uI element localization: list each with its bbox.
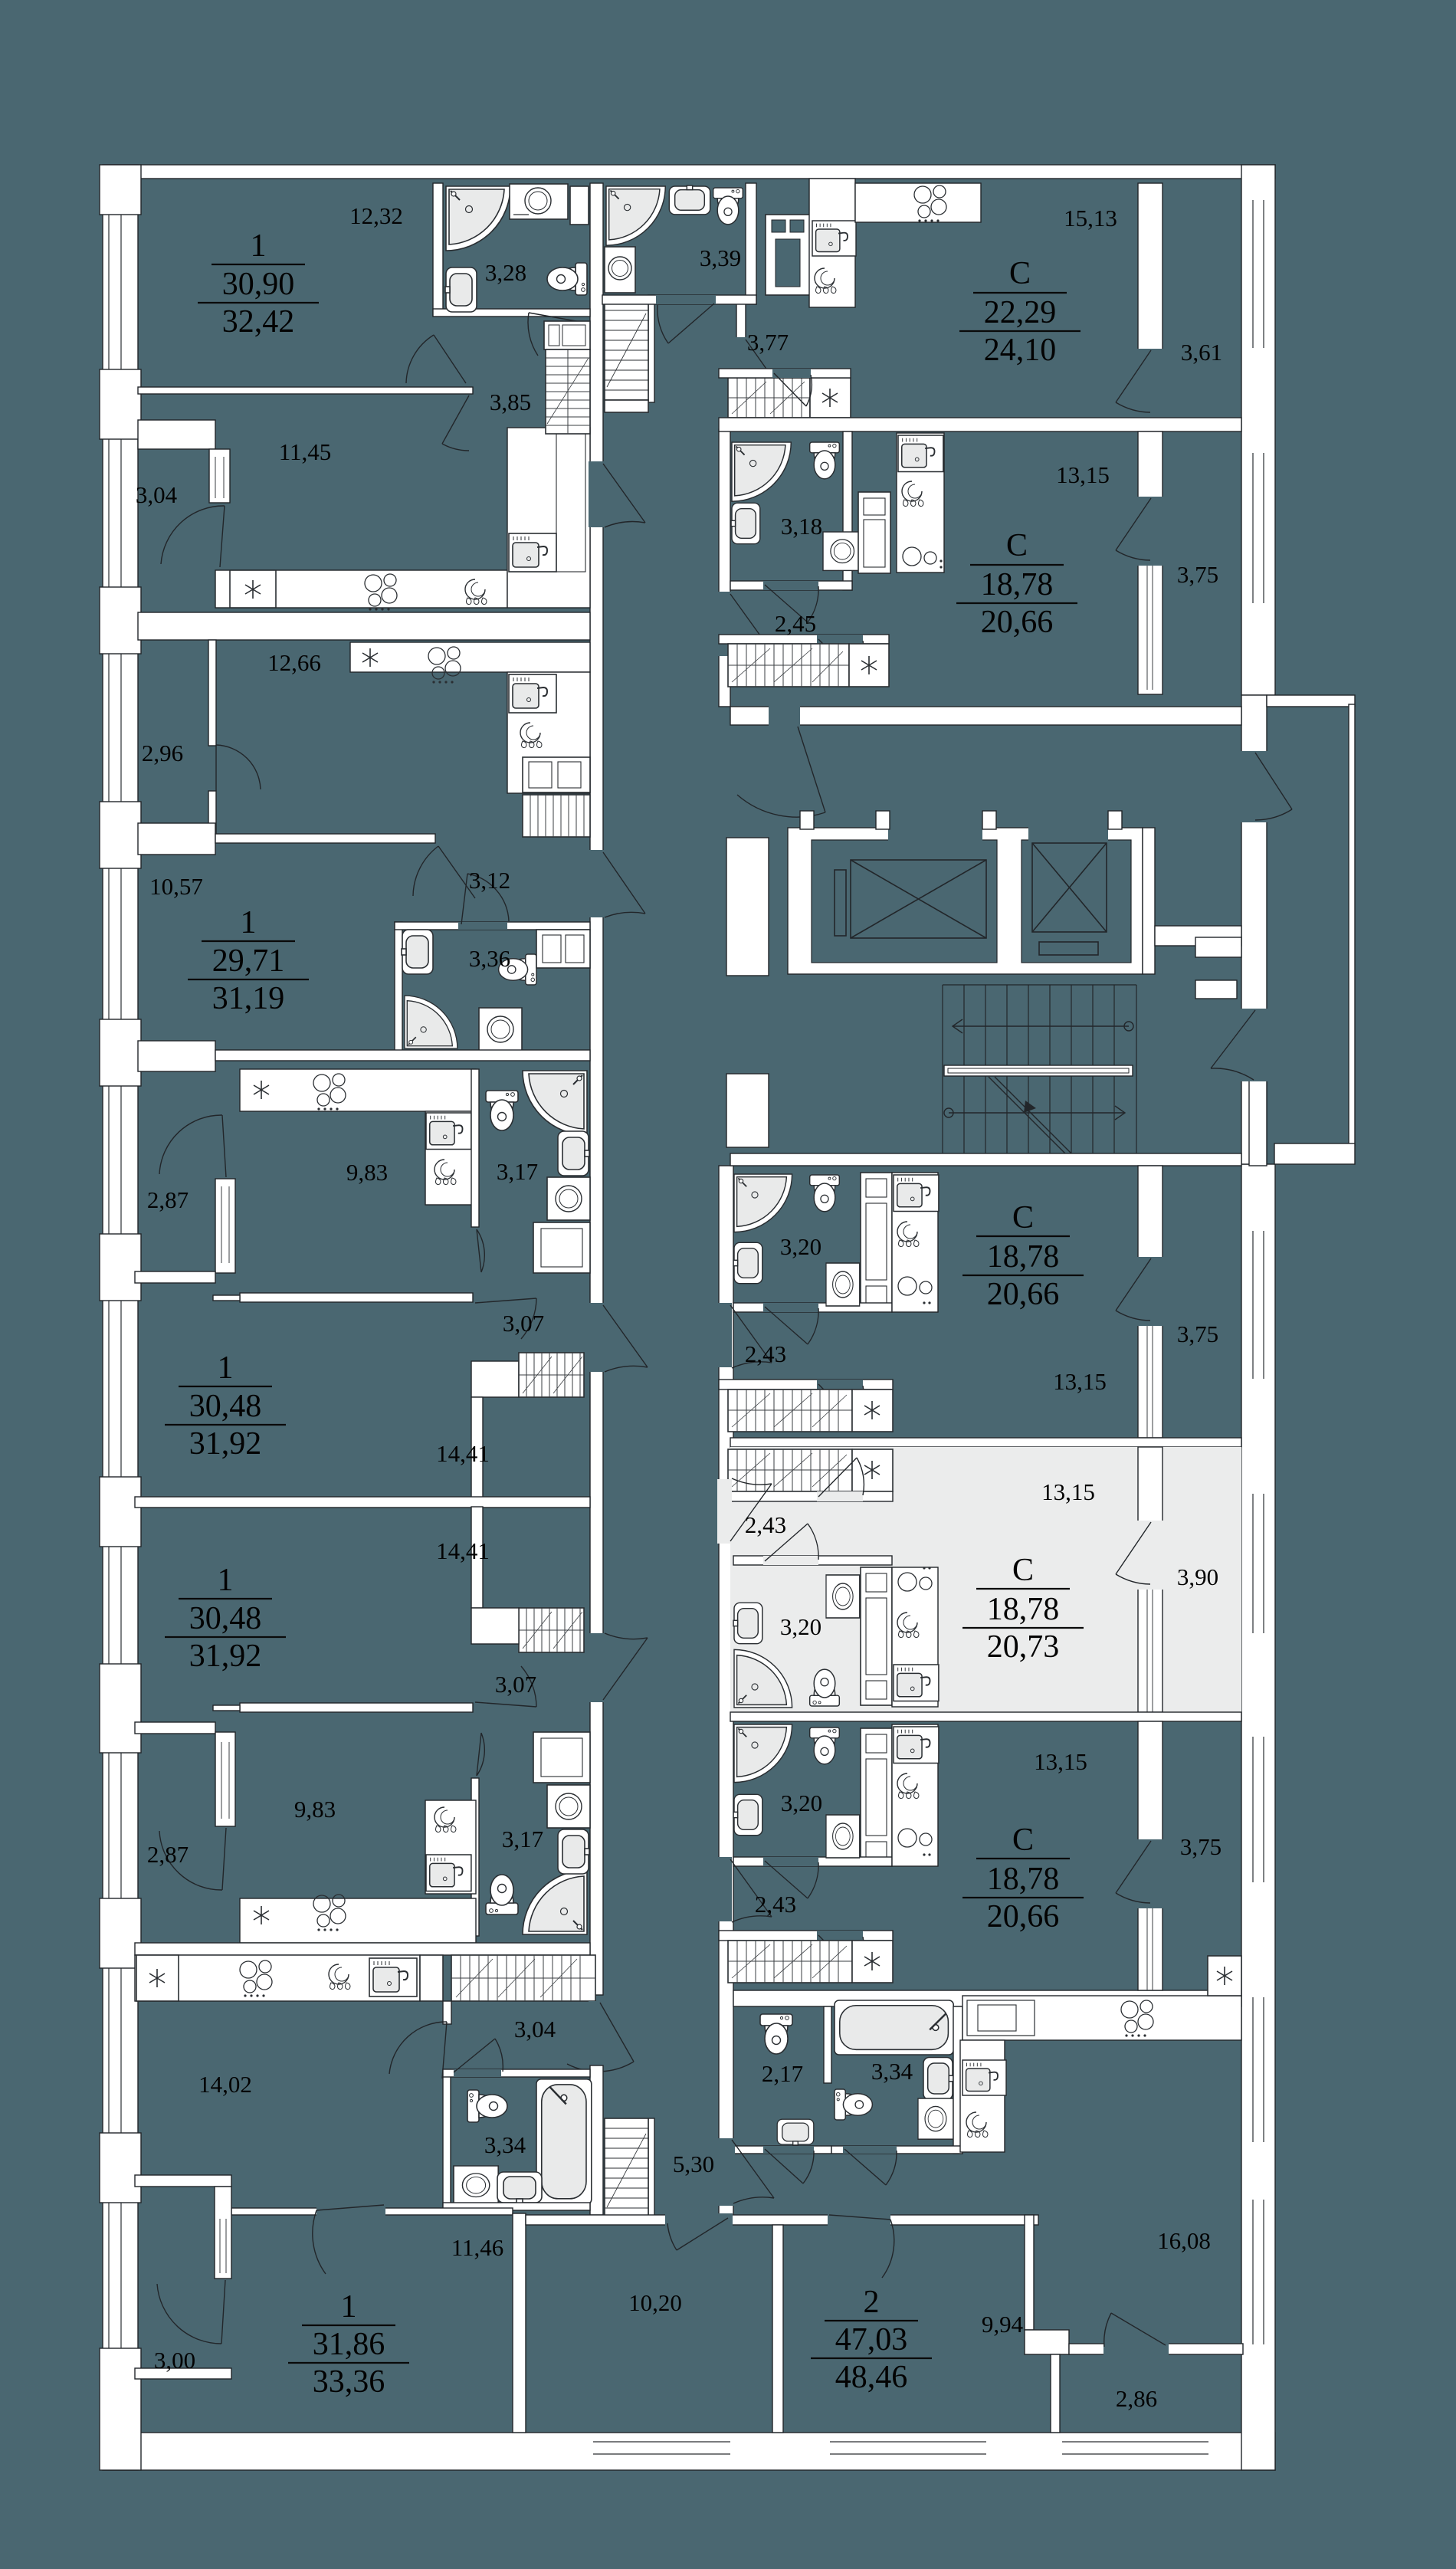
svg-text:2,87: 2,87 xyxy=(147,1186,189,1213)
svg-text:47,03: 47,03 xyxy=(835,2322,908,2357)
svg-text:10,20: 10,20 xyxy=(628,2289,682,2316)
svg-text:3,75: 3,75 xyxy=(1180,1833,1222,1860)
svg-text:18,78: 18,78 xyxy=(987,1239,1060,1275)
svg-text:13,15: 13,15 xyxy=(1034,1748,1087,1775)
svg-text:3,12: 3,12 xyxy=(469,867,510,894)
svg-text:18,78: 18,78 xyxy=(981,567,1054,602)
svg-text:2,96: 2,96 xyxy=(142,740,183,766)
svg-text:3,36: 3,36 xyxy=(469,945,510,972)
svg-text:1: 1 xyxy=(218,1350,234,1386)
svg-text:2,43: 2,43 xyxy=(745,1340,786,1367)
svg-text:11,46: 11,46 xyxy=(451,2234,504,2261)
svg-text:2,43: 2,43 xyxy=(755,1891,796,1918)
svg-text:С: С xyxy=(1012,1823,1034,1858)
svg-text:12,66: 12,66 xyxy=(267,649,321,676)
svg-text:13,15: 13,15 xyxy=(1041,1478,1095,1505)
svg-text:20,66: 20,66 xyxy=(987,1277,1060,1312)
svg-text:31,92: 31,92 xyxy=(189,1639,262,1674)
svg-text:2,17: 2,17 xyxy=(762,2060,803,2087)
svg-text:1: 1 xyxy=(251,228,267,264)
svg-text:3,20: 3,20 xyxy=(781,1790,822,1816)
svg-text:С: С xyxy=(1012,1200,1034,1235)
svg-text:15,13: 15,13 xyxy=(1064,205,1117,231)
svg-text:9,83: 9,83 xyxy=(294,1796,336,1823)
svg-text:31,86: 31,86 xyxy=(313,2327,385,2362)
svg-text:48,46: 48,46 xyxy=(835,2360,908,2395)
svg-text:14,02: 14,02 xyxy=(198,2071,252,2098)
svg-text:13,15: 13,15 xyxy=(1053,1368,1107,1395)
svg-text:2,87: 2,87 xyxy=(147,1841,189,1868)
svg-text:11,45: 11,45 xyxy=(279,438,332,465)
svg-text:3,18: 3,18 xyxy=(781,513,822,540)
svg-text:31,19: 31,19 xyxy=(212,981,285,1016)
svg-text:32,42: 32,42 xyxy=(222,304,295,340)
svg-text:3,34: 3,34 xyxy=(484,2131,526,2158)
svg-text:3,75: 3,75 xyxy=(1177,561,1218,588)
svg-text:5,30: 5,30 xyxy=(673,2151,714,2177)
svg-text:30,48: 30,48 xyxy=(189,1389,262,1424)
svg-text:20,66: 20,66 xyxy=(981,605,1054,640)
svg-text:3,90: 3,90 xyxy=(1177,1563,1218,1590)
svg-text:С: С xyxy=(1006,528,1028,563)
svg-text:2,43: 2,43 xyxy=(745,1511,786,1538)
svg-text:3,75: 3,75 xyxy=(1177,1321,1218,1347)
svg-text:3,61: 3,61 xyxy=(1181,339,1222,366)
svg-text:29,71: 29,71 xyxy=(212,943,285,979)
svg-text:22,29: 22,29 xyxy=(984,295,1057,330)
svg-text:12,32: 12,32 xyxy=(349,202,403,229)
svg-text:9,83: 9,83 xyxy=(346,1159,388,1186)
svg-text:20,66: 20,66 xyxy=(987,1899,1060,1934)
svg-text:3,28: 3,28 xyxy=(485,259,526,286)
svg-text:3,77: 3,77 xyxy=(747,329,789,356)
svg-text:18,78: 18,78 xyxy=(987,1862,1060,1897)
svg-text:33,36: 33,36 xyxy=(313,2364,385,2400)
svg-text:30,90: 30,90 xyxy=(222,267,295,302)
svg-text:3,17: 3,17 xyxy=(502,1826,543,1852)
svg-text:3,34: 3,34 xyxy=(871,2058,913,2085)
svg-text:С: С xyxy=(1009,256,1031,291)
svg-text:3,07: 3,07 xyxy=(495,1671,536,1698)
svg-text:31,92: 31,92 xyxy=(189,1426,262,1462)
svg-text:9,94: 9,94 xyxy=(982,2311,1024,2338)
svg-text:3,07: 3,07 xyxy=(503,1310,544,1337)
svg-text:1: 1 xyxy=(241,905,257,940)
svg-text:2,45: 2,45 xyxy=(775,610,816,637)
svg-text:24,10: 24,10 xyxy=(984,333,1057,368)
svg-text:3,20: 3,20 xyxy=(780,1233,821,1260)
svg-text:3,04: 3,04 xyxy=(136,481,178,508)
svg-text:2,86: 2,86 xyxy=(1116,2385,1157,2412)
svg-text:3,39: 3,39 xyxy=(700,244,741,271)
svg-text:14,41: 14,41 xyxy=(436,1537,490,1564)
svg-text:14,41: 14,41 xyxy=(436,1440,490,1467)
svg-text:С: С xyxy=(1012,1553,1034,1588)
svg-text:13,15: 13,15 xyxy=(1056,461,1110,488)
svg-text:2: 2 xyxy=(864,2285,880,2320)
svg-text:3,04: 3,04 xyxy=(514,2016,556,2042)
svg-text:30,48: 30,48 xyxy=(189,1601,262,1636)
svg-text:10,57: 10,57 xyxy=(149,873,203,900)
svg-text:1: 1 xyxy=(341,2289,357,2325)
svg-text:1: 1 xyxy=(218,1563,234,1598)
svg-text:16,08: 16,08 xyxy=(1157,2227,1211,2254)
svg-text:3,20: 3,20 xyxy=(780,1613,821,1640)
svg-text:3,00: 3,00 xyxy=(154,2347,195,2374)
svg-text:18,78: 18,78 xyxy=(987,1592,1060,1627)
svg-text:20,73: 20,73 xyxy=(987,1629,1060,1665)
svg-text:3,85: 3,85 xyxy=(490,389,531,415)
svg-text:3,17: 3,17 xyxy=(497,1158,538,1185)
